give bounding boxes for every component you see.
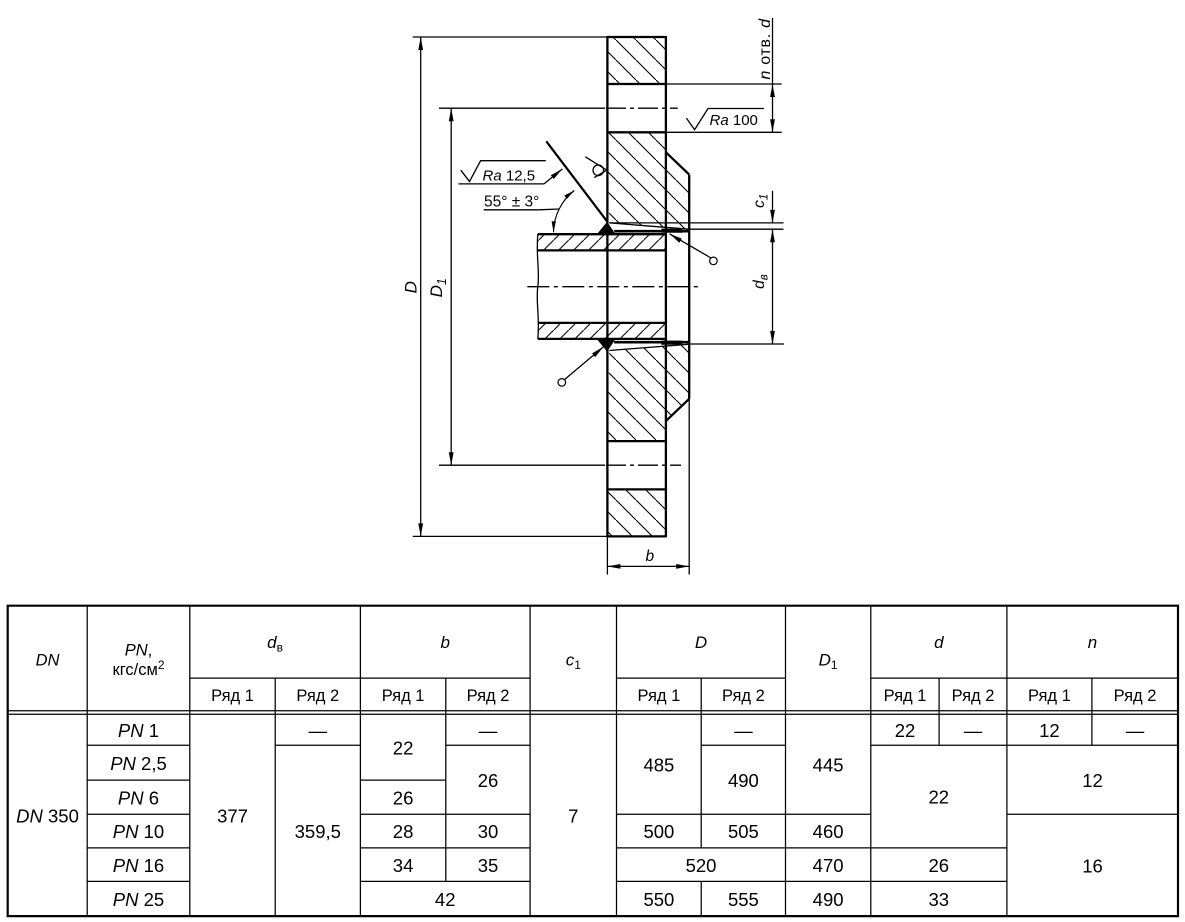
svg-text:Ряд 1: Ряд 1 bbox=[884, 687, 927, 705]
svg-text:Ряд 2: Ряд 2 bbox=[722, 687, 765, 705]
svg-text:d: d bbox=[934, 633, 944, 652]
svg-text:Ряд 1: Ряд 1 bbox=[638, 687, 681, 705]
svg-text:34: 34 bbox=[393, 855, 414, 876]
svg-text:Ряд 1: Ряд 1 bbox=[1028, 687, 1071, 705]
svg-text:28: 28 bbox=[393, 821, 414, 842]
svg-text:26: 26 bbox=[393, 787, 414, 808]
svg-text:555: 555 bbox=[728, 889, 759, 910]
svg-text:PN 6: PN 6 bbox=[118, 787, 159, 808]
svg-text:—: — bbox=[734, 720, 753, 741]
svg-text:b: b bbox=[440, 633, 449, 652]
svg-text:Ряд 2: Ряд 2 bbox=[952, 687, 995, 705]
svg-text:Ряд 2: Ряд 2 bbox=[467, 687, 510, 705]
svg-text:b: b bbox=[645, 548, 654, 565]
svg-text:Ряд 1: Ряд 1 bbox=[382, 687, 425, 705]
svg-text:485: 485 bbox=[643, 754, 674, 775]
svg-text:35: 35 bbox=[478, 855, 499, 876]
svg-text:—: — bbox=[479, 720, 498, 741]
svg-text:PN 10: PN 10 bbox=[113, 821, 164, 842]
svg-text:—: — bbox=[1126, 720, 1145, 741]
svg-text:16: 16 bbox=[1082, 855, 1103, 876]
svg-text:n отв. d: n отв. d bbox=[757, 18, 774, 80]
svg-text:460: 460 bbox=[813, 821, 844, 842]
svg-text:470: 470 bbox=[813, 855, 844, 876]
svg-text:22: 22 bbox=[895, 720, 916, 741]
svg-text:26: 26 bbox=[929, 855, 950, 876]
svg-text:30: 30 bbox=[478, 821, 499, 842]
svg-text:490: 490 bbox=[813, 889, 844, 910]
svg-text:33: 33 bbox=[929, 889, 950, 910]
svg-text:26: 26 bbox=[478, 770, 499, 791]
svg-text:Ряд 2: Ряд 2 bbox=[1114, 687, 1157, 705]
svg-text:D: D bbox=[695, 633, 707, 652]
svg-text:Ряд 1: Ряд 1 bbox=[211, 687, 254, 705]
svg-text:кгс/см2: кгс/см2 bbox=[113, 658, 165, 679]
svg-text:505: 505 bbox=[728, 821, 759, 842]
svg-text:12: 12 bbox=[1082, 770, 1103, 791]
svg-text:359,5: 359,5 bbox=[295, 821, 341, 842]
svg-text:500: 500 bbox=[643, 821, 674, 842]
svg-text:377: 377 bbox=[217, 805, 248, 826]
svg-text:n: n bbox=[1088, 633, 1097, 652]
svg-text:Ra 12,5: Ra 12,5 bbox=[483, 167, 536, 184]
svg-text:PN 25: PN 25 bbox=[113, 889, 164, 910]
svg-text:PN 2,5: PN 2,5 bbox=[110, 753, 167, 774]
svg-text:520: 520 bbox=[686, 855, 717, 876]
svg-text:D: D bbox=[402, 281, 421, 293]
svg-text:PN,: PN, bbox=[125, 642, 153, 660]
svg-text:—: — bbox=[964, 720, 983, 741]
svg-text:PN 1: PN 1 bbox=[118, 720, 159, 741]
svg-text:PN 16: PN 16 bbox=[113, 855, 164, 876]
svg-text:55° ± 3°: 55° ± 3° bbox=[484, 194, 539, 211]
svg-text:550: 550 bbox=[643, 889, 674, 910]
svg-text:7: 7 bbox=[568, 805, 578, 826]
svg-text:22: 22 bbox=[393, 737, 414, 758]
svg-text:Ra 100: Ra 100 bbox=[710, 112, 758, 129]
svg-text:Ряд 2: Ряд 2 bbox=[296, 687, 339, 705]
svg-text:DN: DN bbox=[36, 651, 60, 669]
svg-text:445: 445 bbox=[813, 754, 844, 775]
svg-text:490: 490 bbox=[728, 770, 759, 791]
svg-text:42: 42 bbox=[435, 889, 456, 910]
svg-text:22: 22 bbox=[929, 787, 950, 808]
svg-text:DN 350: DN 350 bbox=[16, 805, 79, 826]
svg-text:12: 12 bbox=[1039, 720, 1060, 741]
svg-text:—: — bbox=[309, 720, 328, 741]
